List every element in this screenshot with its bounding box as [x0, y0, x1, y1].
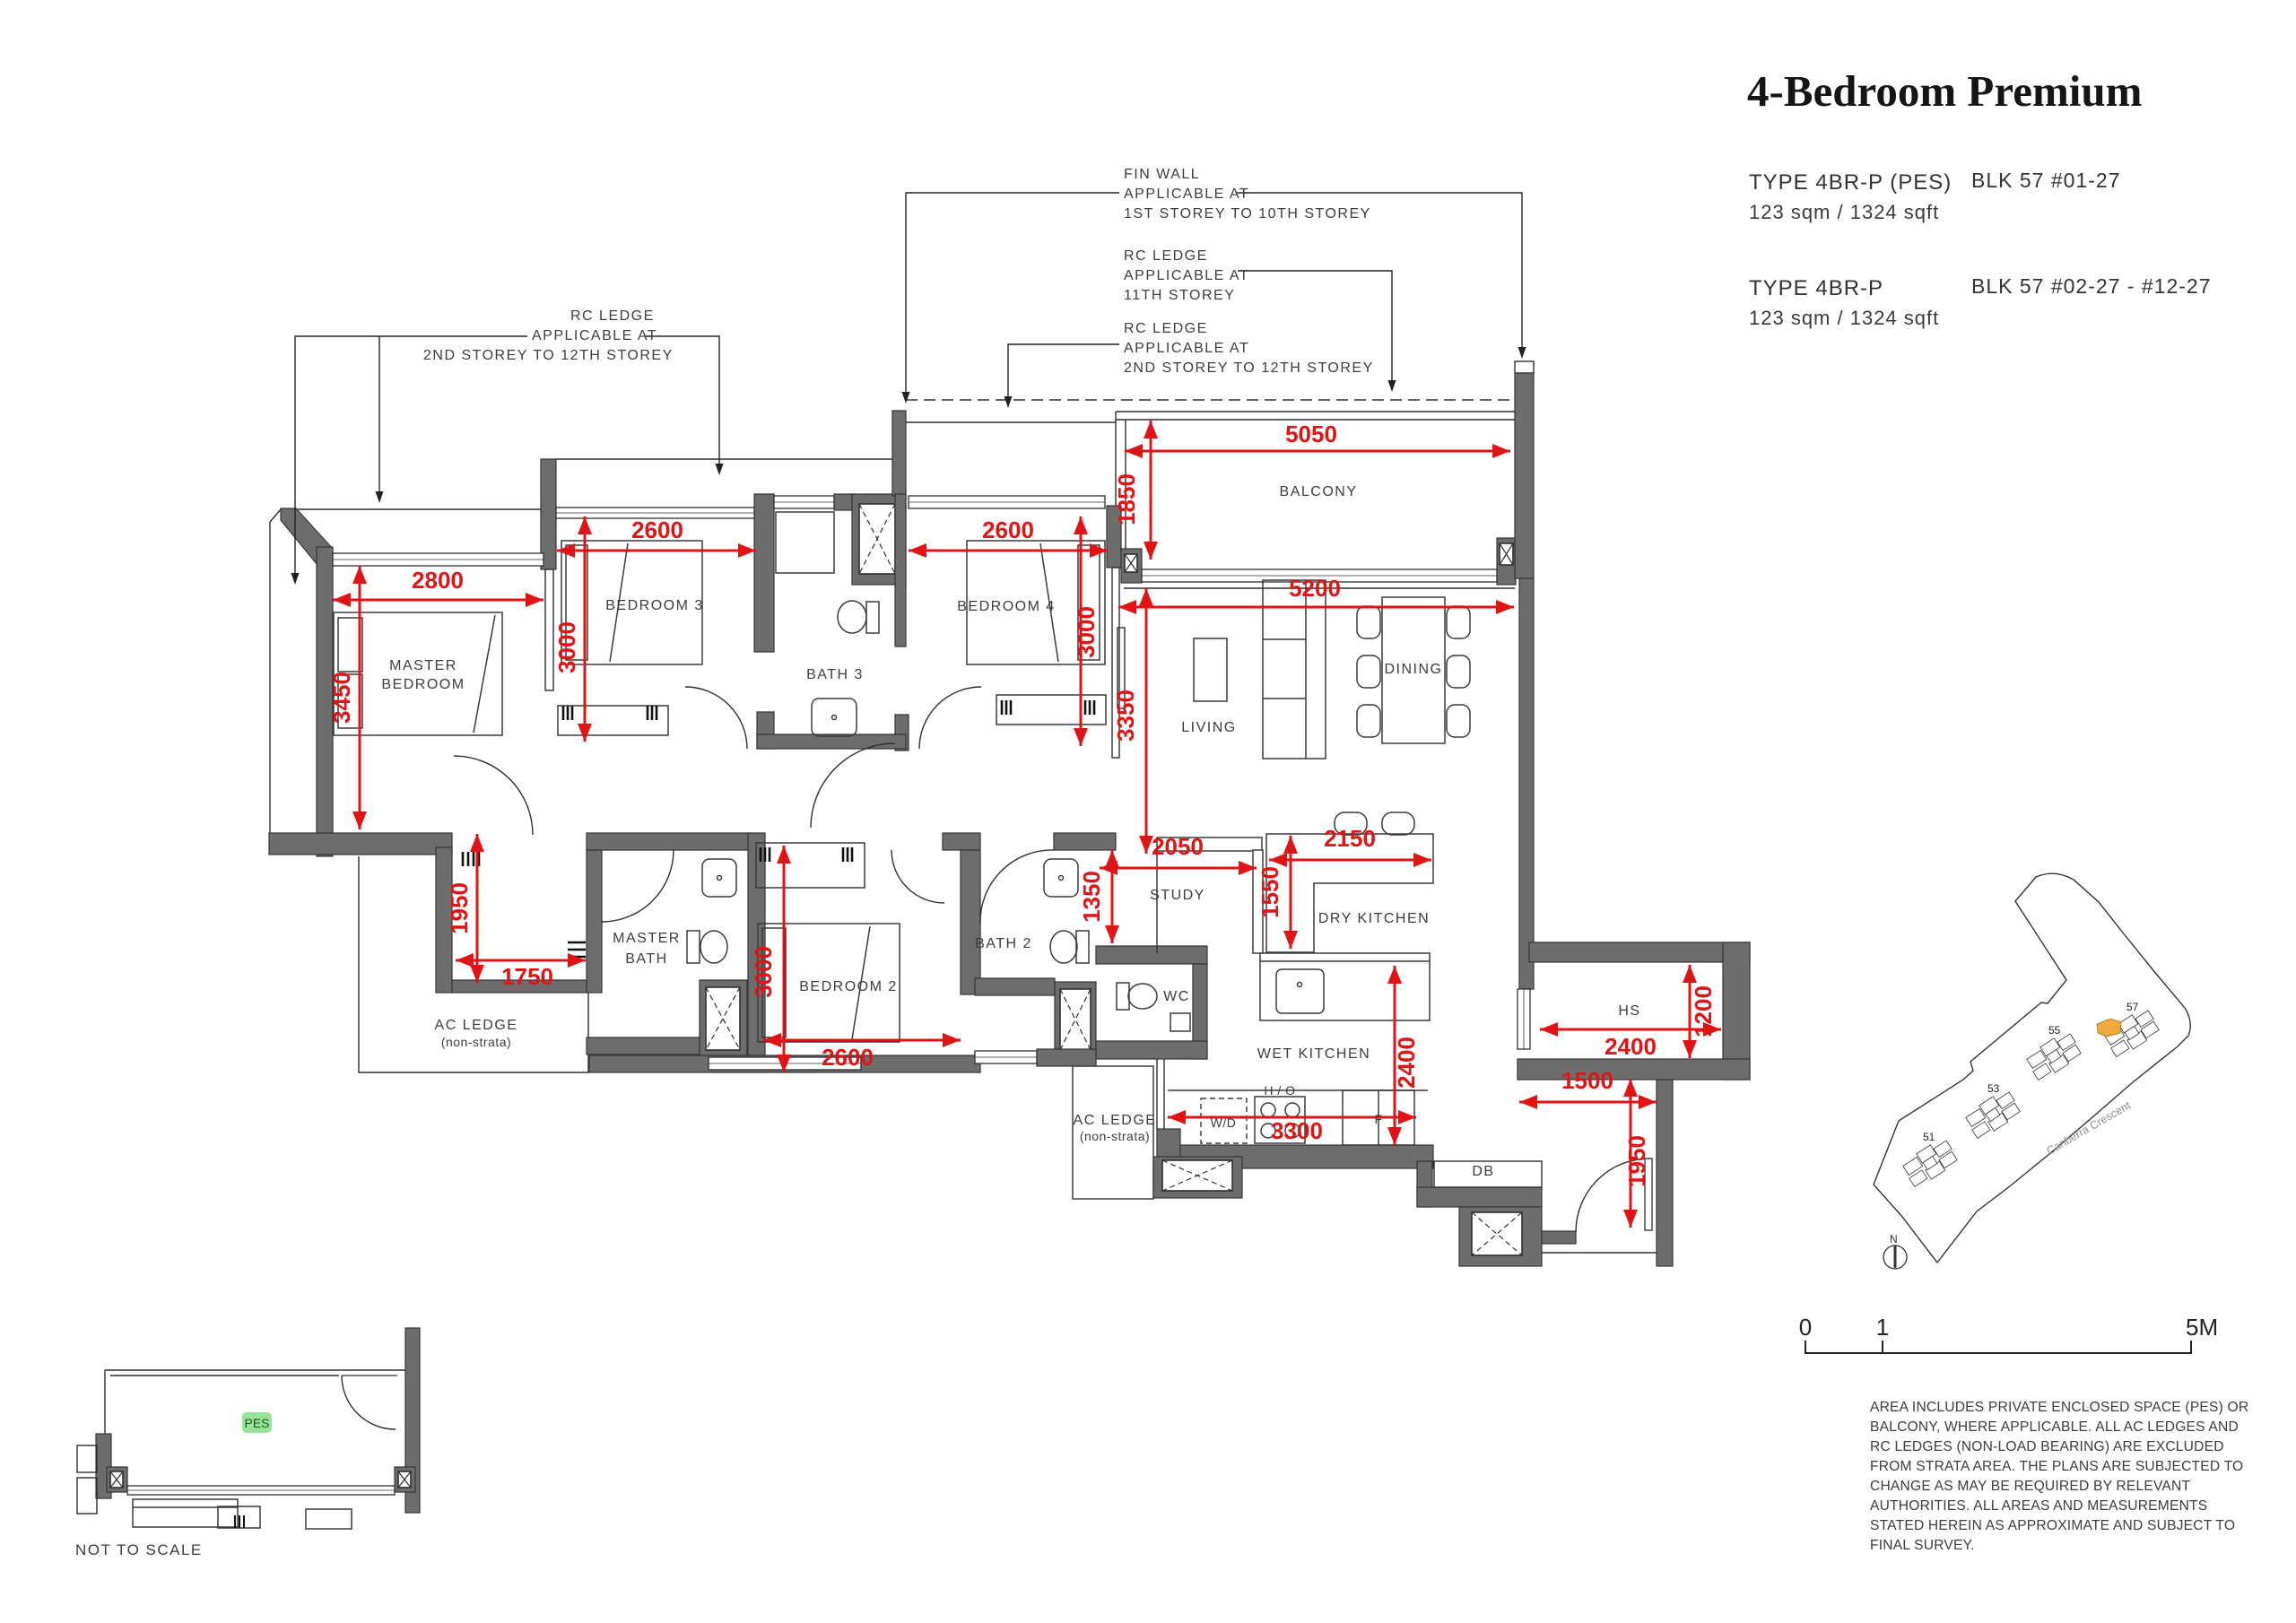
- svg-text:BLK 57 #02-27 - #12-27: BLK 57 #02-27 - #12-27: [1971, 274, 2212, 298]
- svg-text:N: N: [1890, 1233, 1898, 1245]
- svg-text:FIN WALL: FIN WALL: [1124, 167, 1200, 182]
- svg-text:53: 53: [1987, 1082, 2000, 1095]
- svg-text:2050: 2050: [1152, 833, 1204, 860]
- svg-text:(non-strata): (non-strata): [1080, 1129, 1150, 1143]
- svg-text:RC LEDGE: RC LEDGE: [570, 308, 655, 324]
- svg-text:BLK 57 #01-27: BLK 57 #01-27: [1971, 169, 2120, 192]
- svg-text:2ND STOREY TO 12TH STOREY: 2ND STOREY TO 12TH STOREY: [1124, 360, 1374, 376]
- svg-text:TYPE 4BR-P: TYPE 4BR-P: [1749, 276, 1883, 300]
- svg-text:BATH: BATH: [625, 951, 667, 967]
- svg-text:WC: WC: [1163, 989, 1190, 1004]
- svg-text:NOT TO SCALE: NOT TO SCALE: [75, 1541, 203, 1558]
- svg-text:BEDROOM 2: BEDROOM 2: [799, 979, 898, 994]
- svg-text:1350: 1350: [1078, 871, 1105, 923]
- svg-text:AREA INCLUDES PRIVATE ENCLOSED: AREA INCLUDES PRIVATE ENCLOSED SPACE (PE…: [1870, 1400, 2248, 1415]
- svg-text:2600: 2600: [982, 516, 1034, 543]
- svg-text:1ST STOREY TO 10TH STOREY: 1ST STOREY TO 10TH STOREY: [1124, 206, 1371, 221]
- svg-text:MASTER: MASTER: [389, 658, 457, 673]
- svg-text:1950: 1950: [446, 882, 473, 934]
- svg-text:5050: 5050: [1285, 421, 1337, 447]
- svg-text:3300: 3300: [1271, 1117, 1323, 1144]
- svg-text:TYPE 4BR-P (PES): TYPE 4BR-P (PES): [1749, 170, 1952, 195]
- svg-text:PES: PES: [244, 1416, 269, 1430]
- svg-text:APPLICABLE AT: APPLICABLE AT: [1124, 268, 1249, 283]
- svg-text:2400: 2400: [1605, 1033, 1657, 1060]
- svg-text:BEDROOM: BEDROOM: [381, 677, 465, 692]
- svg-text:3450: 3450: [328, 672, 355, 724]
- svg-text:BALCONY, WHERE APPLICABLE. ALL: BALCONY, WHERE APPLICABLE. ALL AC LEDGES…: [1870, 1419, 2239, 1435]
- svg-text:5200: 5200: [1289, 575, 1341, 602]
- svg-text:1200: 1200: [1690, 985, 1717, 1037]
- svg-text:RC LEDGES (NON-LOAD BEARING) A: RC LEDGES (NON-LOAD BEARING) ARE EXCLUDE…: [1870, 1439, 2224, 1454]
- svg-text:DRY KITCHEN: DRY KITCHEN: [1318, 911, 1430, 926]
- svg-text:MASTER: MASTER: [613, 931, 681, 946]
- svg-text:RC LEDGE: RC LEDGE: [1124, 248, 1208, 264]
- svg-text:1850: 1850: [1113, 473, 1140, 525]
- svg-text:H / O: H / O: [1264, 1083, 1295, 1098]
- svg-text:FINAL SURVEY.: FINAL SURVEY.: [1870, 1538, 1975, 1553]
- svg-text:2400: 2400: [1393, 1037, 1420, 1089]
- svg-text:1750: 1750: [501, 963, 553, 990]
- svg-text:0: 0: [1799, 1314, 1812, 1341]
- svg-text:BATH 2: BATH 2: [975, 936, 1032, 951]
- svg-text:3000: 3000: [553, 621, 580, 673]
- svg-text:3000: 3000: [750, 946, 777, 998]
- svg-text:51: 51: [1923, 1131, 1935, 1143]
- svg-text:57: 57: [2126, 1001, 2139, 1013]
- svg-text:WET KITCHEN: WET KITCHEN: [1257, 1046, 1370, 1062]
- svg-text:APPLICABLE AT: APPLICABLE AT: [1124, 341, 1249, 356]
- svg-text:2150: 2150: [1324, 825, 1376, 852]
- svg-text:2600: 2600: [822, 1044, 874, 1071]
- svg-text:1: 1: [1876, 1314, 1889, 1341]
- svg-text:FROM STRATA AREA. THE PLANS AR: FROM STRATA AREA. THE PLANS ARE SUBJECTE…: [1870, 1459, 2243, 1474]
- svg-text:55: 55: [2048, 1024, 2061, 1037]
- svg-text:11TH STOREY: 11TH STOREY: [1124, 288, 1235, 303]
- svg-text:DB: DB: [1472, 1164, 1494, 1179]
- svg-text:2ND STOREY TO 12TH STOREY: 2ND STOREY TO 12TH STOREY: [423, 348, 674, 363]
- svg-text:STATED HEREIN AS APPROXIMATE A: STATED HEREIN AS APPROXIMATE AND SUBJECT…: [1870, 1518, 2235, 1533]
- svg-text:STUDY: STUDY: [1150, 888, 1205, 903]
- svg-text:BEDROOM 3: BEDROOM 3: [605, 598, 704, 613]
- svg-text:APPLICABLE AT: APPLICABLE AT: [1124, 187, 1249, 202]
- svg-text:1950: 1950: [1623, 1135, 1650, 1187]
- svg-text:1550: 1550: [1257, 866, 1283, 918]
- svg-text:123 sqm / 1324 sqft: 123 sqm / 1324 sqft: [1749, 201, 1939, 223]
- svg-text:4-Bedroom Premium: 4-Bedroom Premium: [1747, 66, 2142, 116]
- svg-text:CHANGE AS MAY BE REQUIRED BY R: CHANGE AS MAY BE REQUIRED BY RELEVANT: [1870, 1479, 2190, 1494]
- svg-text:HS: HS: [1618, 1003, 1640, 1019]
- svg-text:LIVING: LIVING: [1181, 720, 1236, 735]
- svg-text:AC LEDGE: AC LEDGE: [1074, 1113, 1157, 1128]
- svg-text:APPLICABLE AT: APPLICABLE AT: [532, 328, 657, 343]
- svg-text:3350: 3350: [1112, 690, 1139, 742]
- svg-text:123 sqm / 1324 sqft: 123 sqm / 1324 sqft: [1749, 307, 1939, 329]
- svg-text:5M: 5M: [2186, 1314, 2218, 1341]
- svg-text:BALCONY: BALCONY: [1280, 484, 1358, 499]
- svg-text:BATH 3: BATH 3: [806, 667, 864, 682]
- svg-text:(non-strata): (non-strata): [441, 1035, 511, 1049]
- svg-text:DINING: DINING: [1385, 662, 1443, 677]
- svg-text:F: F: [1374, 1112, 1382, 1126]
- svg-text:2800: 2800: [412, 567, 464, 594]
- svg-text:RC LEDGE: RC LEDGE: [1124, 321, 1208, 336]
- svg-text:AUTHORITIES. ALL AREAS AND MEA: AUTHORITIES. ALL AREAS AND MEASUREMENTS: [1870, 1498, 2207, 1514]
- svg-text:3000: 3000: [1073, 606, 1100, 658]
- svg-text:AC LEDGE: AC LEDGE: [435, 1018, 518, 1033]
- svg-text:W/D: W/D: [1211, 1115, 1237, 1130]
- svg-text:BEDROOM 4: BEDROOM 4: [957, 599, 1056, 614]
- svg-text:1500: 1500: [1561, 1067, 1613, 1094]
- svg-text:2600: 2600: [631, 516, 683, 543]
